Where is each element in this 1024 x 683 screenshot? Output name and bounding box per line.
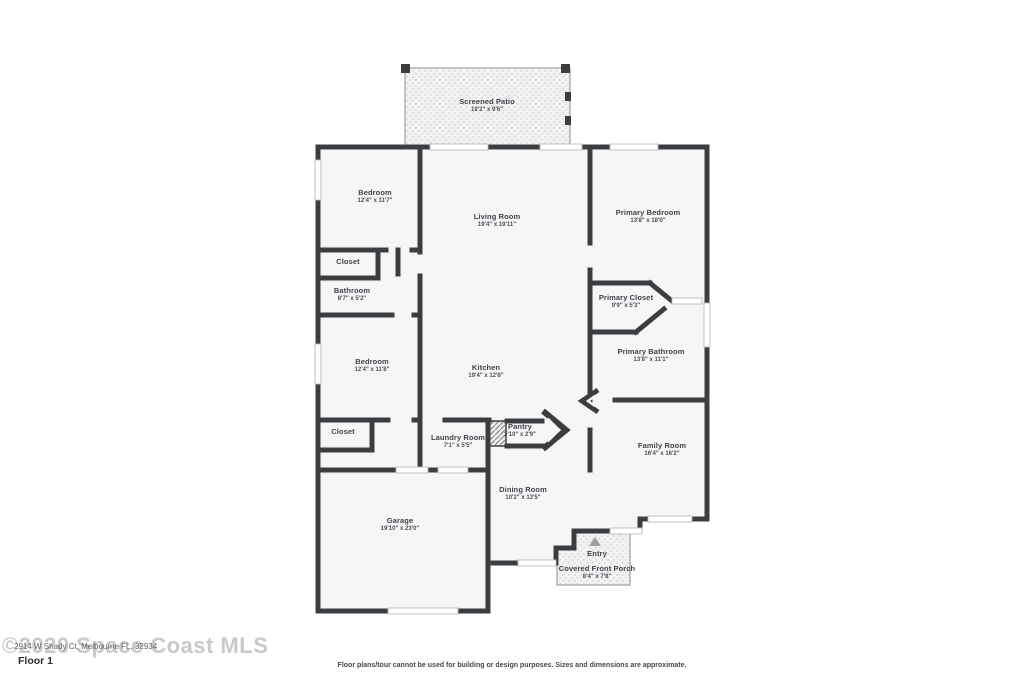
dining-window [518, 560, 556, 566]
patio-wall-post [565, 92, 571, 101]
room-label-kitchen: Kitchen 19'4" x 12'8" [468, 363, 503, 381]
bedroom-window [315, 344, 321, 384]
room-label-bedroom-1: Bedroom 12'4" x 11'7" [358, 188, 393, 206]
bedroom-window [315, 160, 321, 200]
patio-corner-post [401, 64, 410, 73]
room-label-screened-patio: Screened Patio 19'2" x 9'6" [459, 97, 515, 115]
room-label-primary-closet: Primary Closet 9'9" x 5'3" [599, 293, 653, 311]
garage-entry-door [396, 467, 428, 473]
patio-corner-post [561, 64, 570, 73]
family-room-window [648, 516, 692, 522]
room-label-primary-bathroom: Primary Bathroom 13'8" x 11'1" [617, 347, 684, 365]
room-label-family-room: Family Room 16'4" x 16'2" [638, 441, 686, 459]
room-label-primary-bedroom: Primary Bedroom 13'8" x 18'0" [616, 208, 680, 226]
listing-address-watermark: 2914 W Shady Ct, Melbourne FL, 32934 [14, 642, 157, 651]
primary-bedroom-window [610, 144, 658, 150]
room-label-dining-room: Dining Room 10'2" x 13'5" [499, 485, 547, 503]
floor-label: Floor 1 [18, 655, 53, 667]
floorplan-page: Screened Patio 19'2" x 9'6" Bedroom 12'4… [0, 0, 1024, 683]
room-label-living-room: Living Room 19'4" x 19'11" [474, 212, 521, 230]
room-label-bathroom: Bathroom 8'7" x 5'2" [334, 286, 370, 304]
patio-slider-window [540, 144, 582, 150]
room-label-covered-front-porch: Covered Front Porch 8'4" x 7'8" [559, 564, 636, 582]
room-label-pantry: Pantry 3'10" x 2'9" [504, 422, 536, 440]
room-label-laundry-room: Laundry Room 7'1" x 5'5" [431, 433, 485, 451]
room-label-garage: Garage 19'10" x 23'0" [381, 516, 420, 534]
side-window [704, 303, 710, 347]
front-door [610, 528, 642, 534]
garage-door [388, 608, 458, 614]
laundry-door [438, 467, 468, 473]
room-label-bedroom-2: Bedroom 12'4" x 11'8" [355, 357, 390, 375]
patio-slider-window [430, 144, 488, 150]
room-label-closet-2: Closet [331, 427, 355, 437]
room-label-entry: Entry [587, 549, 607, 559]
patio-wall-post [565, 116, 571, 125]
room-label-closet-1: Closet [336, 257, 360, 267]
disclaimer-text: Floor plans/tour cannot be used for buil… [0, 662, 1024, 669]
primary-hall-door [672, 298, 702, 304]
